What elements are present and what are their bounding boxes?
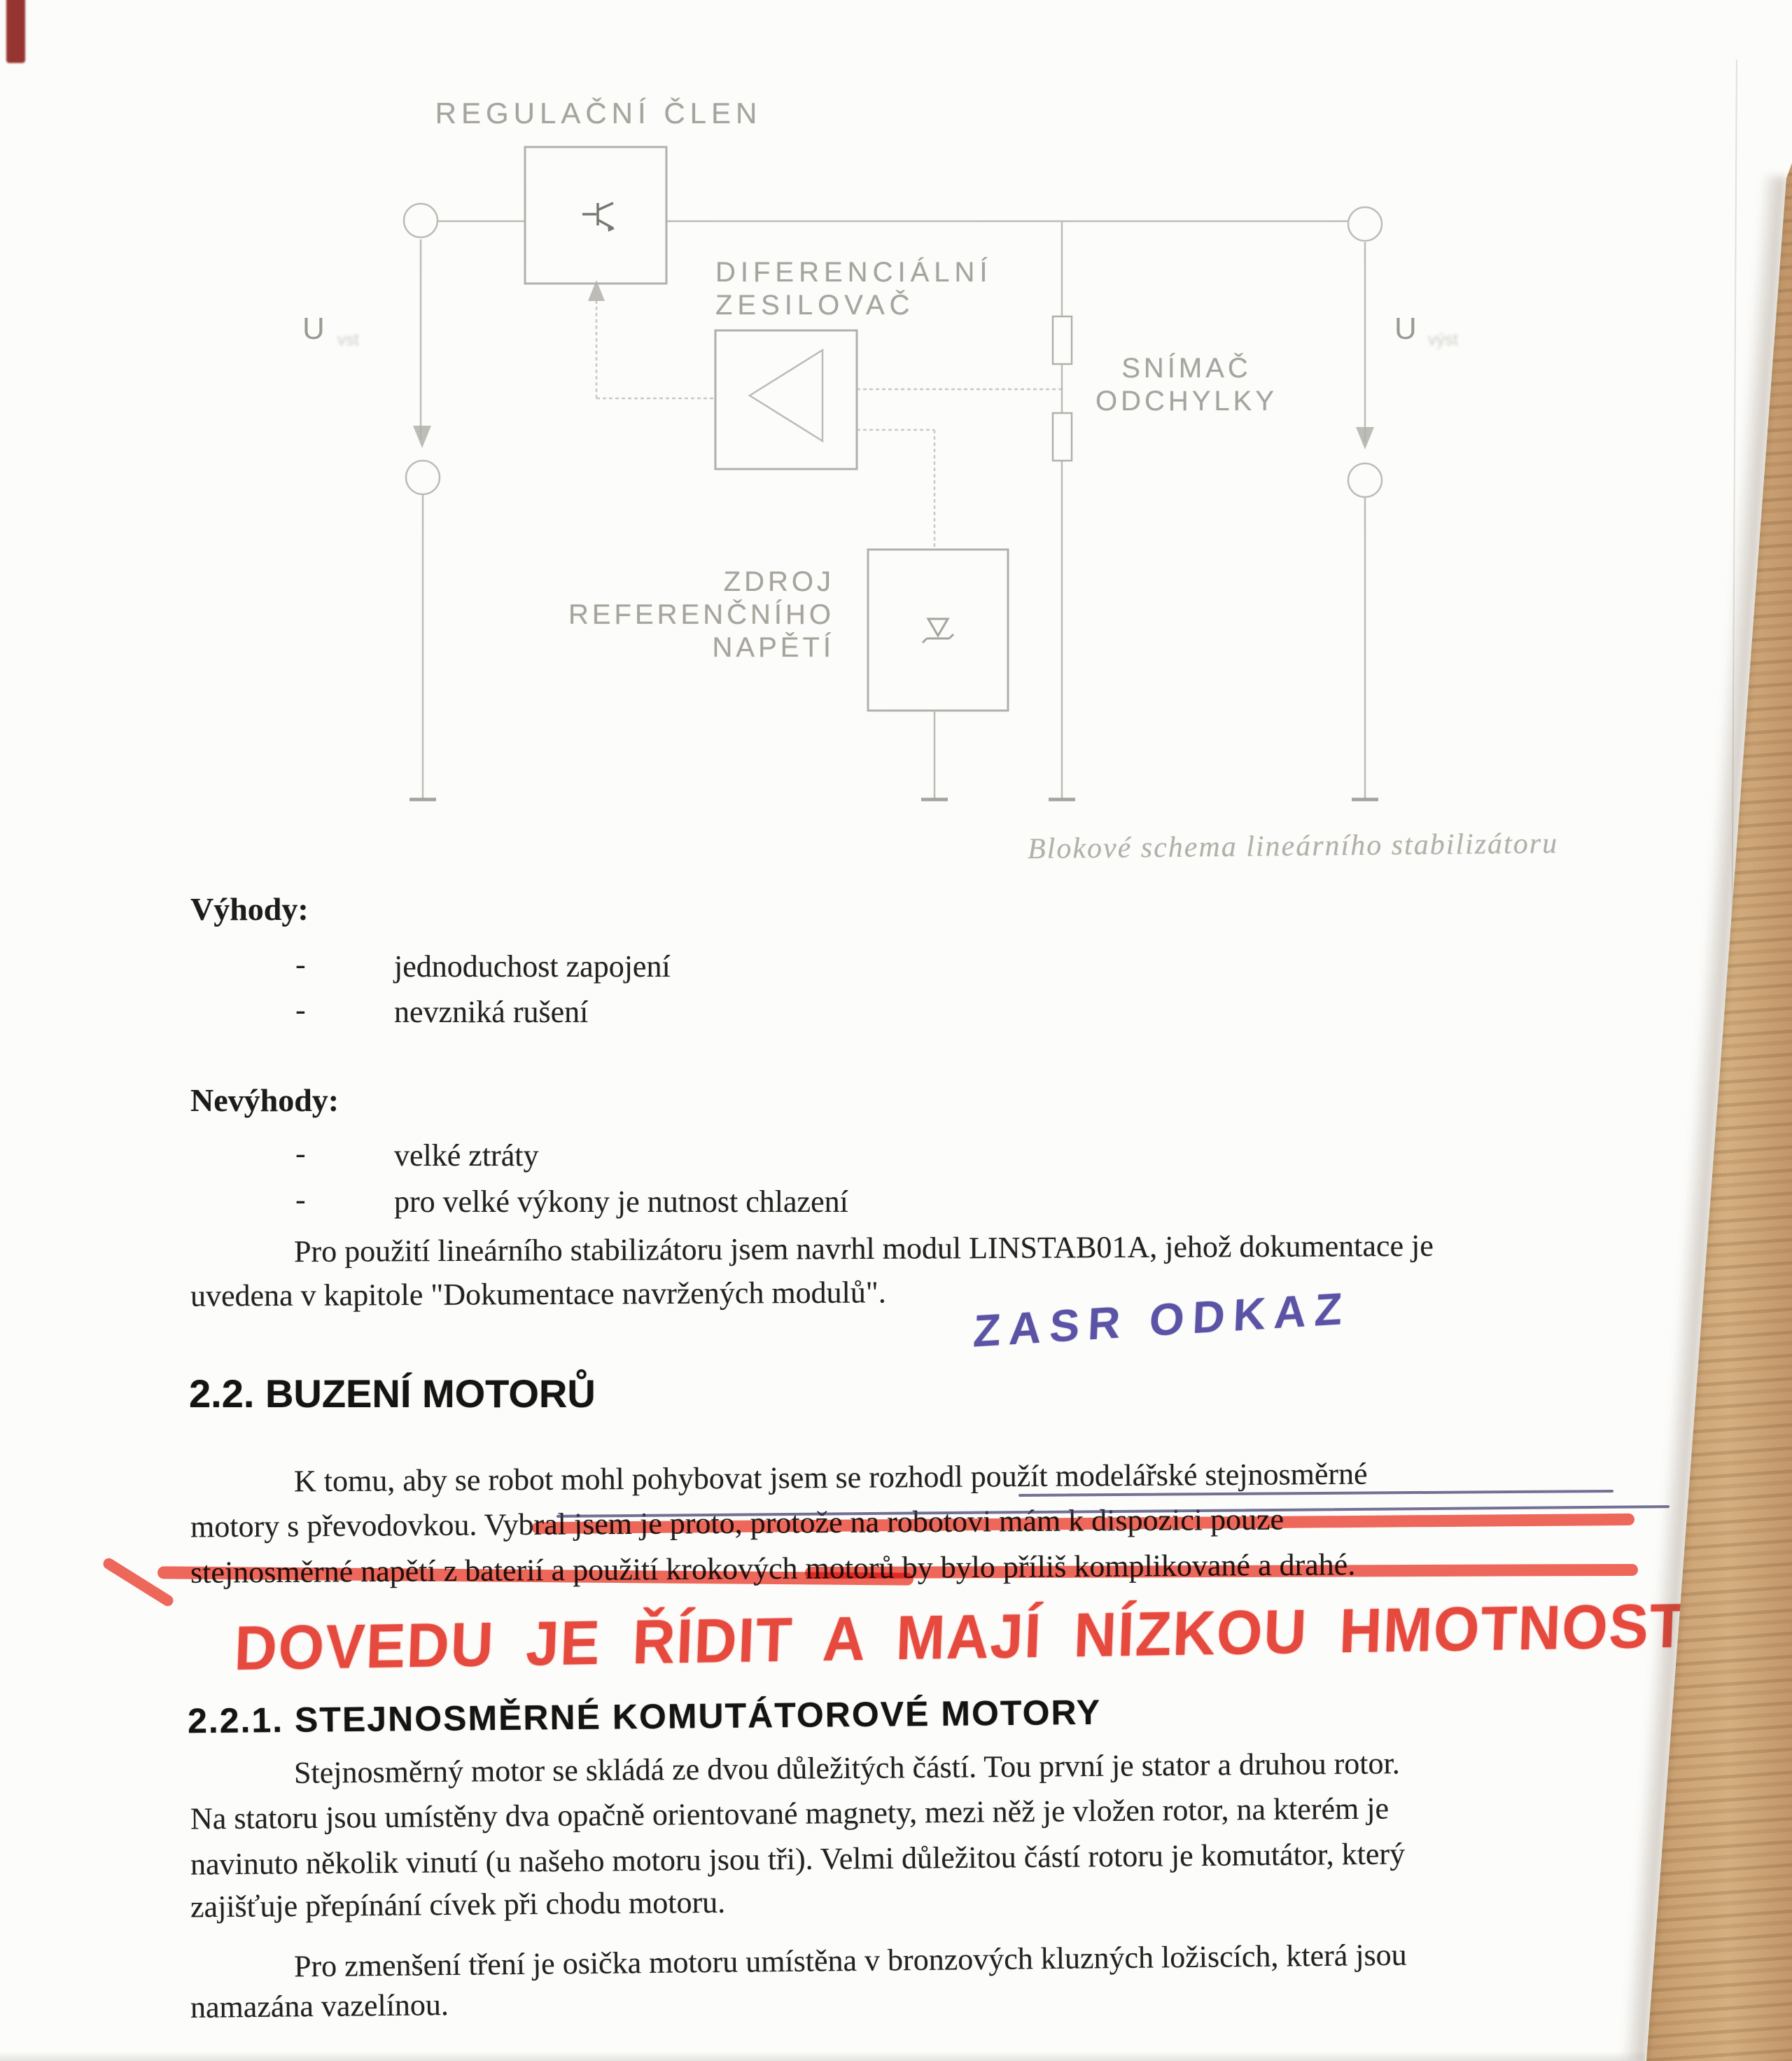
stabilizer-block-diagram xyxy=(0,0,1792,875)
paragraph-line: navinuto několik vinutí (u našeho motoru… xyxy=(190,1833,1406,1885)
paragraph-line: Pro zmenšení tření je osička motoru umís… xyxy=(294,1935,1407,1987)
label-regulator: REGULAČNÍ ČLEN xyxy=(434,97,763,130)
label-diff-amp-line2: ZESILOVAČ xyxy=(715,289,993,322)
paragraph-line: Stejnosměrný motor se skládá ze dvou důl… xyxy=(294,1743,1400,1794)
disadvantage-item: pro velké výkony je nutnost chlazení xyxy=(394,1182,848,1222)
feedback-wire xyxy=(596,300,715,398)
label-u-output: U xyxy=(1394,312,1417,347)
input-terminal-bottom xyxy=(406,461,440,494)
advantages-heading: Výhody: xyxy=(190,890,309,928)
label-reference-line2: REFERENČNÍHO xyxy=(532,599,834,631)
red-marker-hook xyxy=(101,1556,175,1609)
output-terminal-top xyxy=(1348,207,1382,241)
reference-box xyxy=(868,550,1008,711)
section-2-2-heading: 2.2. BUZENÍ MOTORŮ xyxy=(189,1371,596,1416)
resistor-upper-icon xyxy=(1053,316,1072,364)
red-marker-strike xyxy=(805,1564,1638,1579)
bullet-dash: - xyxy=(295,1182,306,1217)
section-2-2-1-heading: 2.2.1. STEJNOSMĚRNÉ KOMUTÁTOROVÉ MOTORY xyxy=(188,1692,1102,1742)
label-diff-amp-line1: DIFERENCIÁLNÍ xyxy=(715,256,993,289)
paragraph-line: Na statoru jsou umístěny dva opačně orie… xyxy=(190,1789,1389,1840)
label-sensor-line1: SNÍMAČ xyxy=(1081,352,1291,385)
label-reference-line3: NAPĚTÍ xyxy=(532,631,834,664)
label-sensor-line2: ODCHYLKY xyxy=(1081,385,1291,418)
handwritten-red-note: DOVEDU JE ŘÍDIT A MAJÍ NÍZKOU HMOTNOST xyxy=(233,1590,1688,1684)
label-u-input: U xyxy=(302,312,325,347)
bullet-dash: - xyxy=(295,992,306,1028)
down-arrow-icon-left xyxy=(413,426,431,448)
label-diff-amp: DIFERENCIÁLNÍ ZESILOVAČ xyxy=(715,256,993,322)
output-terminal-bottom xyxy=(1348,463,1382,497)
paragraph-line: Pro použití lineárního stabilizátoru jse… xyxy=(294,1226,1434,1273)
advantage-item: jednoduchost zapojení xyxy=(394,946,671,987)
paragraph-line: namazána vazelínou. xyxy=(190,1985,449,2028)
resistor-lower-icon xyxy=(1053,413,1072,461)
label-u-input-sub: vst xyxy=(337,330,359,350)
paragraph-line: zajišťuje přepínání cívek při chodu moto… xyxy=(190,1882,726,1928)
zener-diode-icon xyxy=(923,619,953,643)
page-bottom-shadow xyxy=(0,2051,1645,2061)
bullet-dash: - xyxy=(295,1136,306,1171)
opamp-triangle-icon xyxy=(750,350,822,441)
reference-wire xyxy=(857,430,934,550)
label-reference-line1: ZDROJ xyxy=(532,566,834,599)
bullet-dash: - xyxy=(295,946,306,982)
disadvantage-item: velké ztráty xyxy=(394,1136,538,1176)
paragraph-line: uvedena v kapitole "Dokumentace navržený… xyxy=(190,1272,886,1316)
handwritten-blue-note: ZASR ODKAZ xyxy=(972,1282,1352,1357)
diff-amp-box xyxy=(715,330,857,469)
label-u-output-sub: výst xyxy=(1428,330,1458,350)
figure-caption: Blokové schema lineárního stabilizátoru xyxy=(1028,827,1559,866)
transistor-icon xyxy=(582,203,615,232)
down-arrow-icon-right xyxy=(1356,427,1374,449)
scanned-page: REGULAČNÍ ČLEN DIFERENCIÁLNÍ ZESILOVAČ S… xyxy=(0,0,1792,2061)
advantage-item: nevzniká rušení xyxy=(394,992,588,1033)
input-terminal-top xyxy=(404,204,437,237)
disadvantages-heading: Nevýhody: xyxy=(190,1082,339,1119)
label-sensor: SNÍMAČ ODCHYLKY xyxy=(1081,352,1291,418)
label-reference: ZDROJ REFERENČNÍHO NAPĚTÍ xyxy=(532,566,834,664)
